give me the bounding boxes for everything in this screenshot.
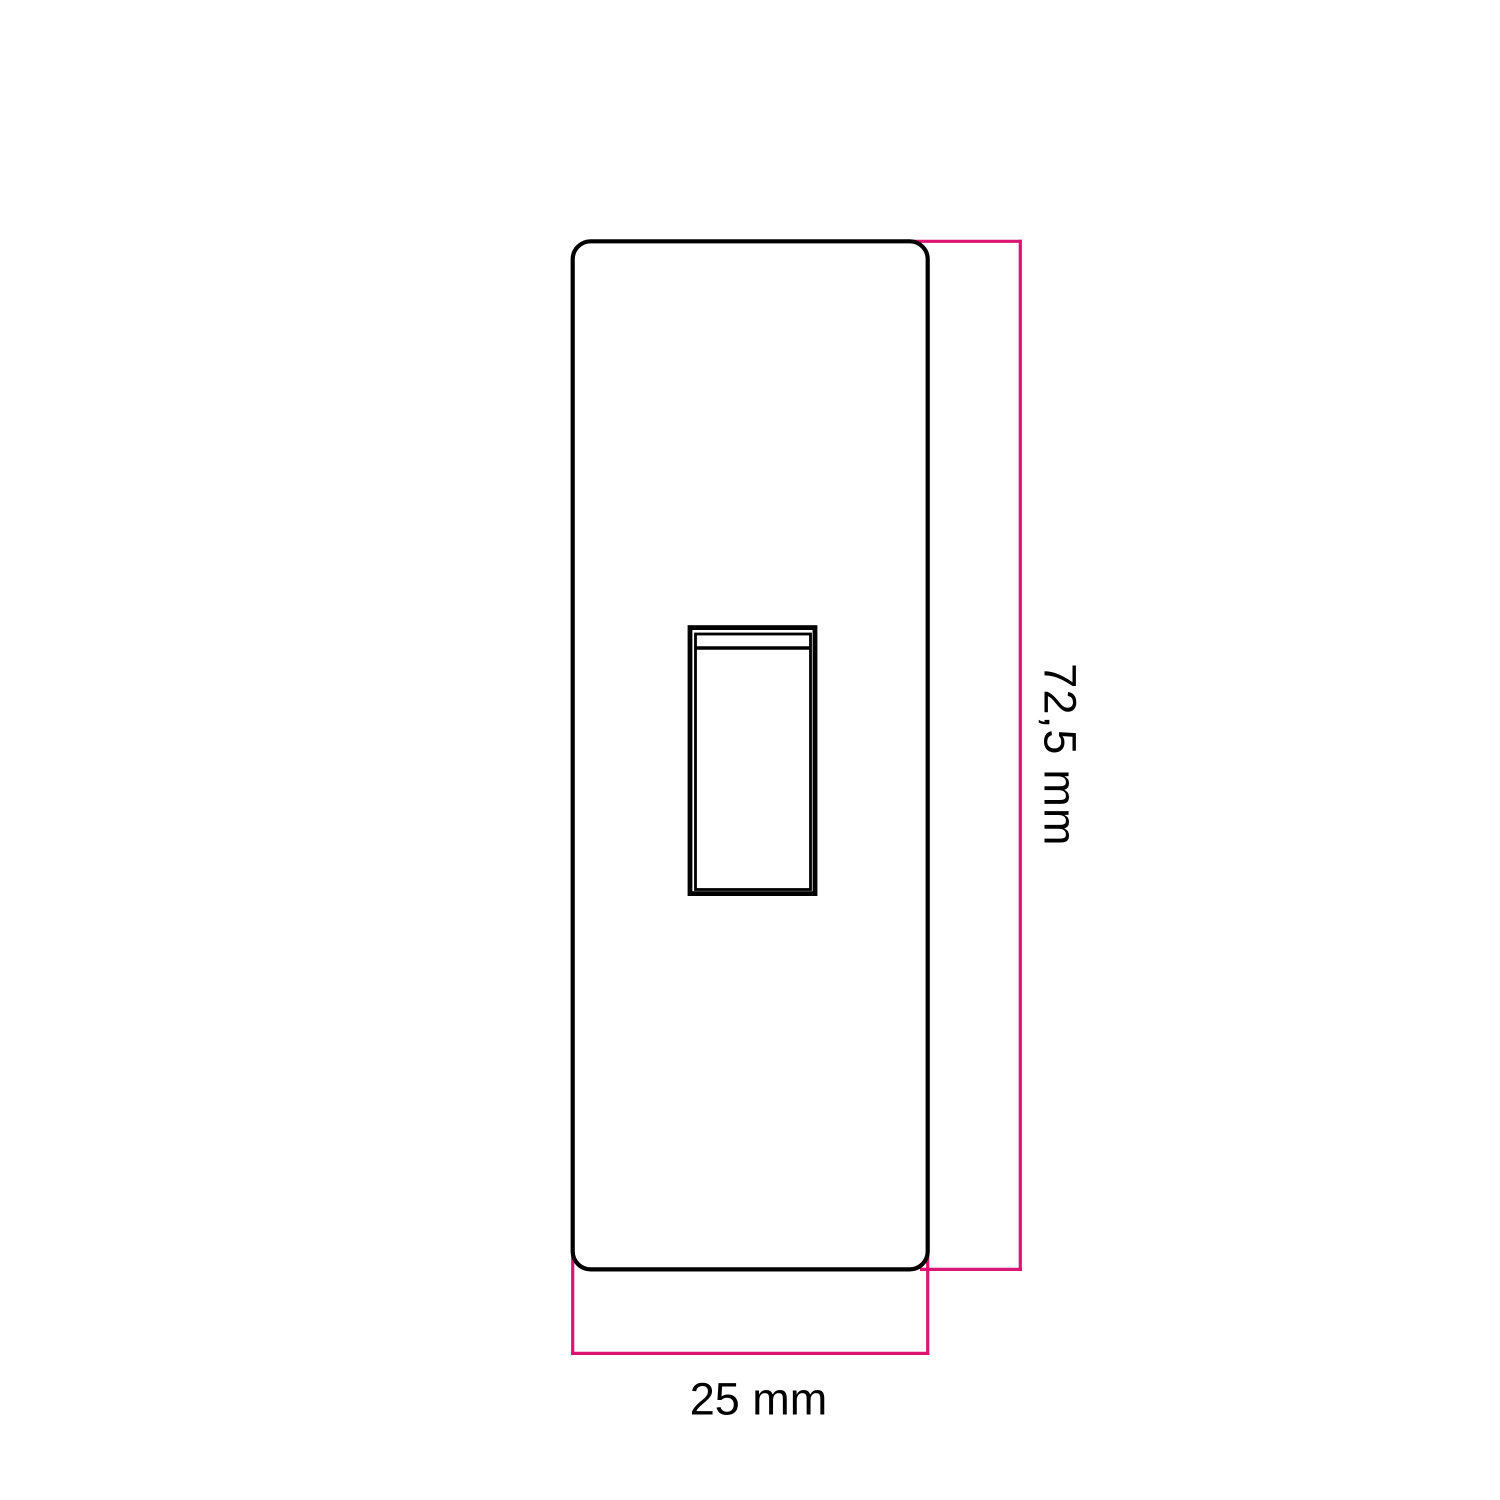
- svg-text:25 mm: 25 mm: [690, 1374, 828, 1425]
- svg-text:72,5 mm: 72,5 mm: [1035, 663, 1086, 846]
